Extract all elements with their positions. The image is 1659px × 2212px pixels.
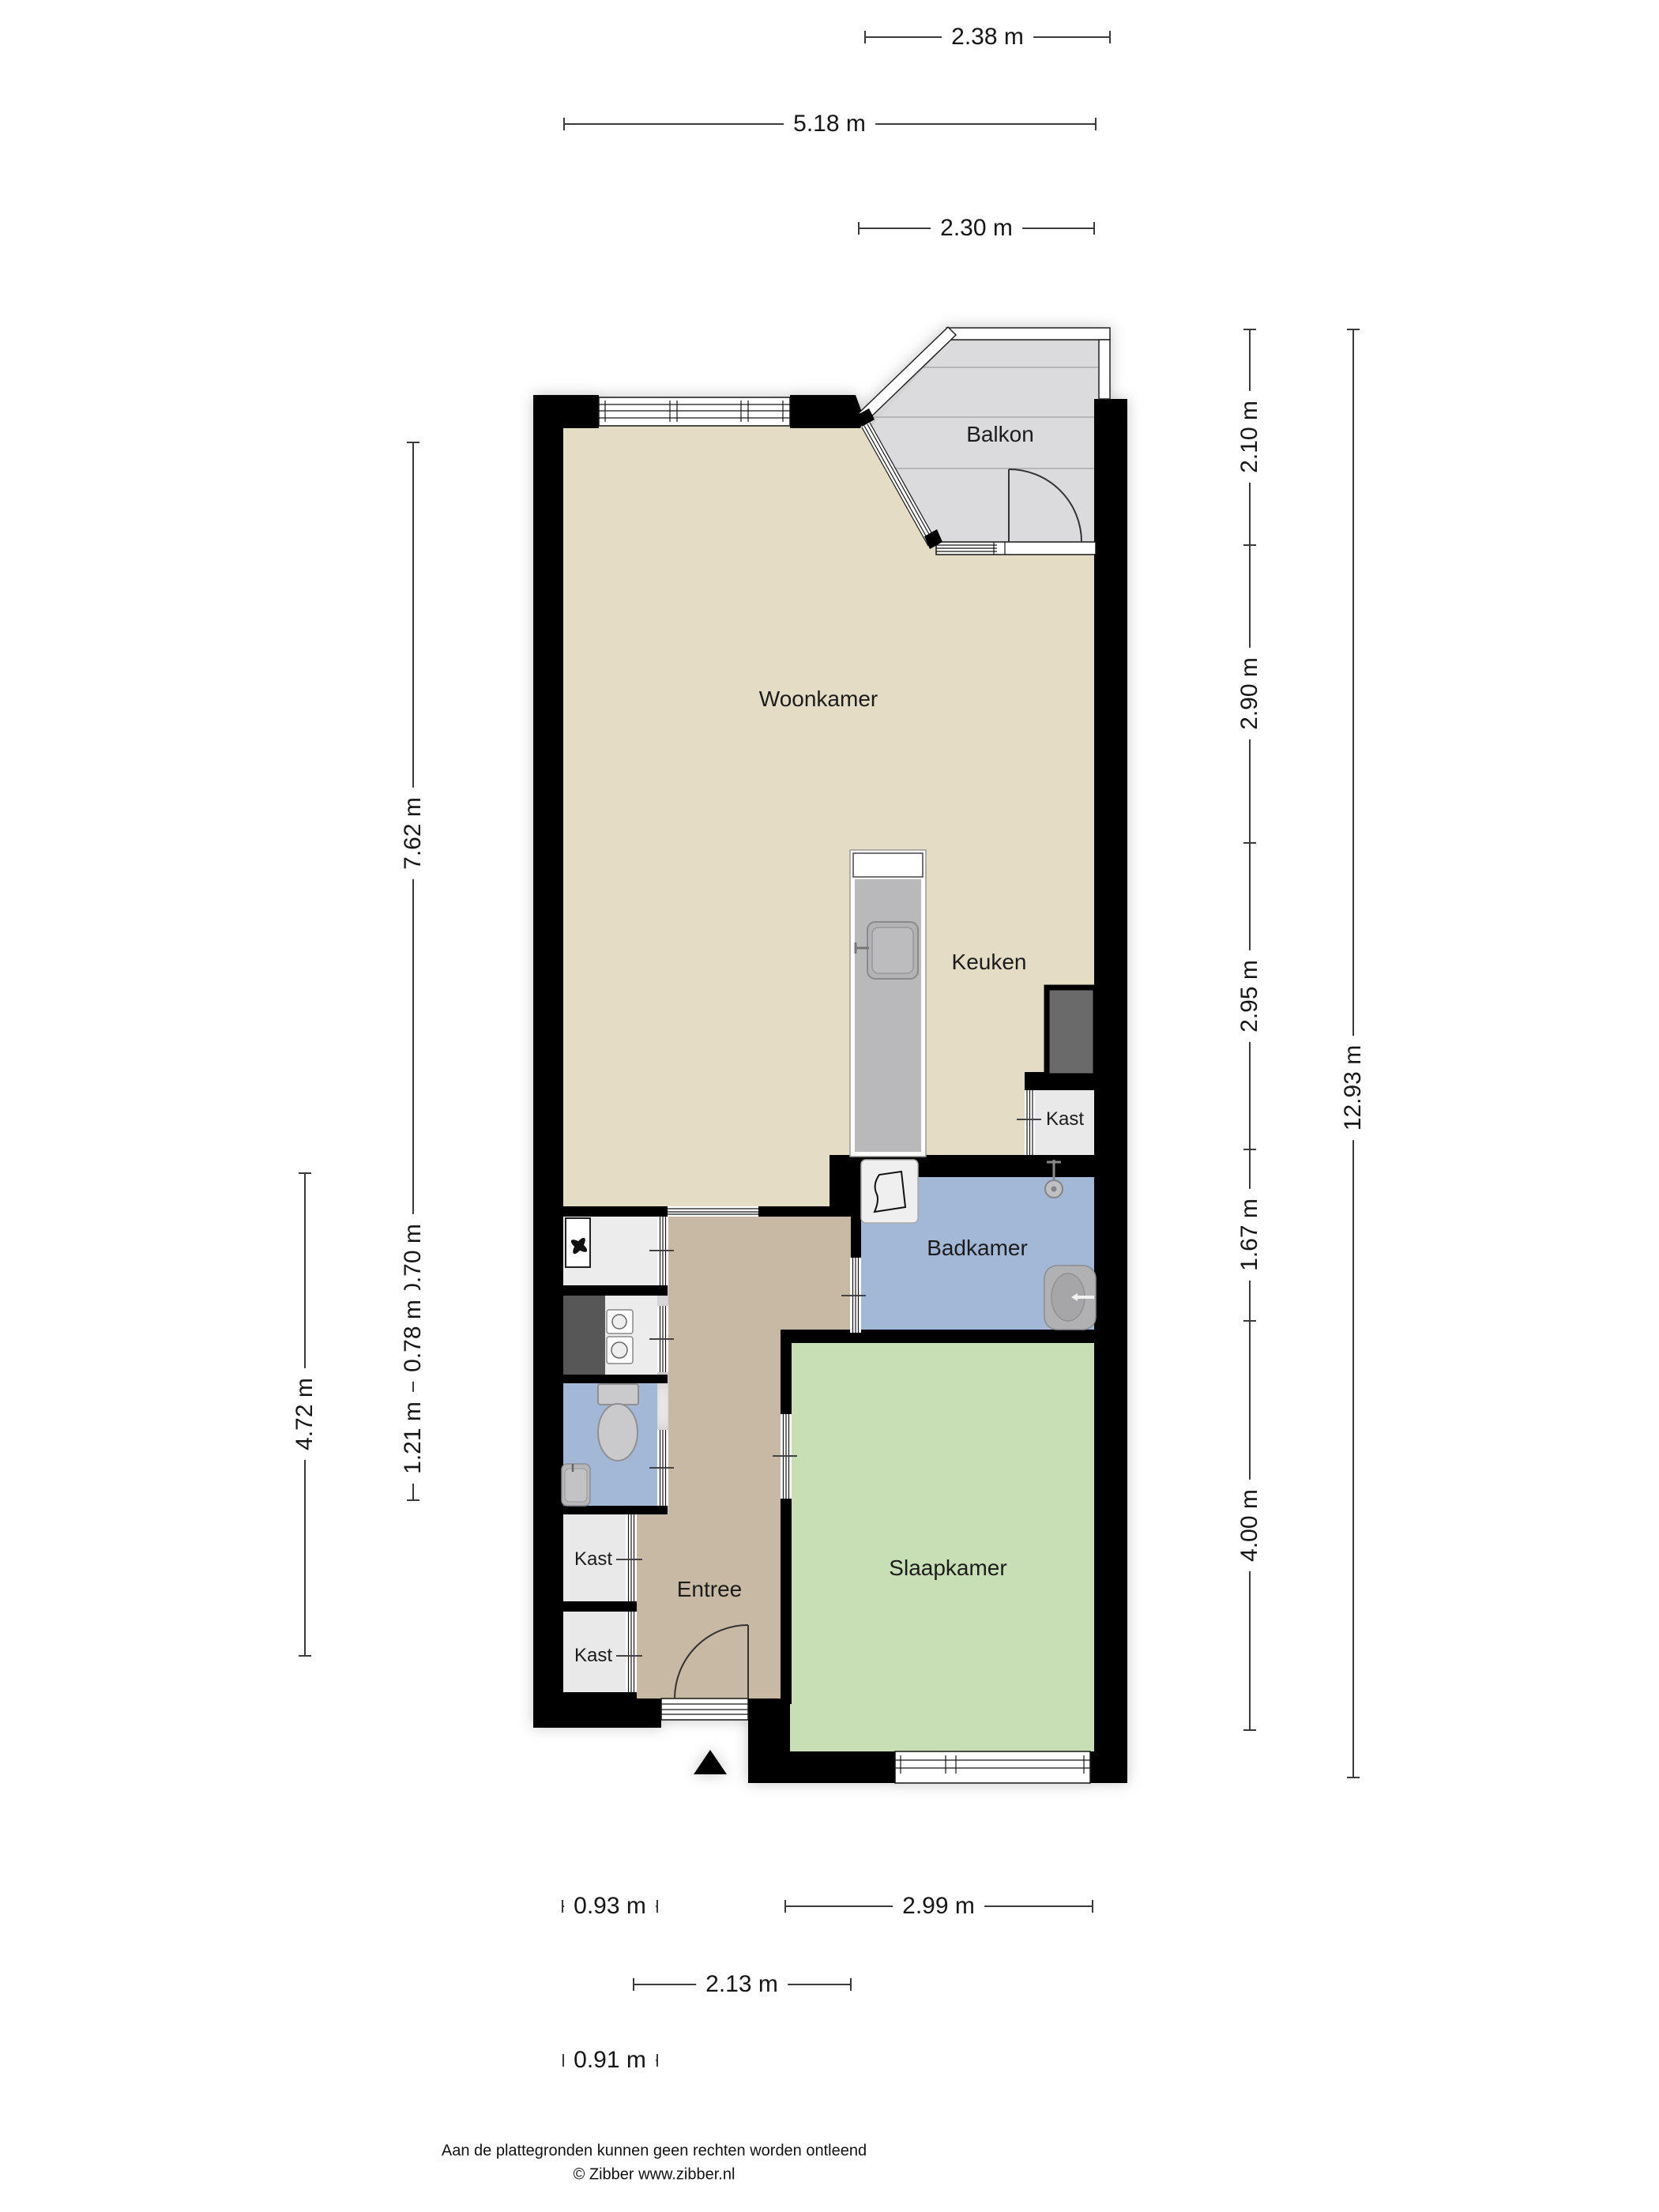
- dim-left-toilet: 1.21 m: [400, 1392, 427, 1484]
- dim-top-balcony: 2.38 m: [942, 24, 1033, 51]
- dimension-lines: [0, 0, 1659, 2212]
- dim-bottom-closet: 0.93 m: [564, 1893, 656, 1920]
- room-label-kast-2: Kast: [574, 1645, 612, 1667]
- dim-right-bedroom: 4.00 m: [1236, 1480, 1263, 1571]
- floorplan-page: { "rooms": { "woonkamer": {"label": "Woo…: [0, 0, 1659, 2212]
- dim-right-living: 2.90 m: [1236, 648, 1263, 739]
- dim-right-kitchen: 2.95 m: [1236, 950, 1263, 1042]
- dim-left-outer: 4.72 m: [292, 1368, 318, 1460]
- footer-disclaimer: Aan de plattegronden kunnen geen rechten…: [442, 2142, 867, 2161]
- dim-right-total: 12.93 m: [1340, 1036, 1367, 1140]
- dim-bottom-bedroom: 2.99 m: [893, 1893, 984, 1920]
- dim-lines-bottom: [562, 1900, 1093, 2067]
- room-label-kast-keuken: Kast: [1046, 1108, 1084, 1130]
- dim-bottom-entree: 2.13 m: [696, 1971, 788, 1998]
- dim-right-balcony: 2.10 m: [1236, 391, 1263, 483]
- footer-copyright: © Zibber www.zibber.nl: [574, 2166, 735, 2184]
- dim-right-bath: 1.67 m: [1236, 1189, 1263, 1281]
- dim-left-living: 7.62 m: [400, 788, 427, 879]
- dim-top-living: 5.18 m: [784, 111, 875, 137]
- room-label-slaapkamer: Slaapkamer: [889, 1556, 1006, 1581]
- dim-bottom-closet2: 0.91 m: [564, 2047, 656, 2074]
- room-label-badkamer: Badkamer: [927, 1236, 1028, 1261]
- dim-left-boiler: 0.78 m: [400, 1290, 427, 1382]
- room-label-entree: Entree: [677, 1577, 743, 1602]
- room-label-woonkamer: Woonkamer: [759, 687, 878, 712]
- room-label-keuken: Keuken: [952, 950, 1027, 975]
- room-label-balkon: Balkon: [966, 422, 1034, 447]
- dim-top-balcdoor: 2.30 m: [931, 215, 1022, 242]
- room-label-kast-1: Kast: [574, 1548, 612, 1571]
